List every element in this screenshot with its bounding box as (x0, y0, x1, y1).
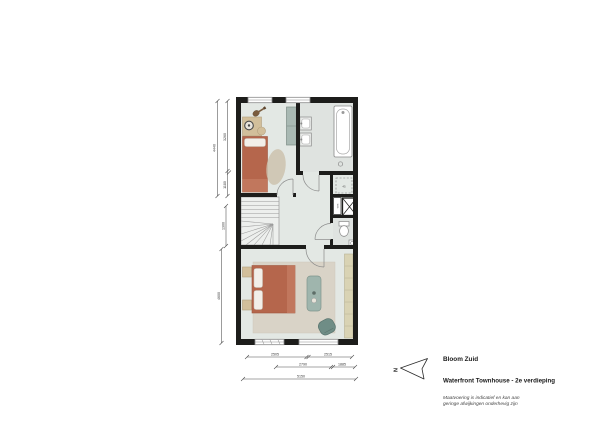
dim-left-seg-top: 3260 (223, 133, 227, 141)
title-block: Bloom Zuid Waterfront Townhouse - 2e ver… (443, 356, 555, 407)
dim-left-seg-bottom: 1180 (223, 181, 227, 189)
north-arrow: N (394, 359, 428, 380)
wardrobe-right (345, 254, 354, 338)
window-top-left (248, 97, 272, 102)
sink-2 (300, 133, 312, 146)
nightstand-1 (243, 267, 252, 277)
single-bed (243, 137, 268, 193)
dim-bottom-row1-right: 2515 (324, 352, 332, 356)
window-top-right (286, 97, 310, 102)
dresser-island (307, 276, 321, 311)
wall-bed2-bath (296, 100, 300, 175)
wardrobe-teal (287, 107, 297, 145)
sink-1 (300, 117, 312, 130)
floor-plan: 45 wm (236, 97, 358, 345)
north-label: N (394, 368, 400, 372)
washing-machine: wm (334, 198, 342, 215)
drawing-title: Waterfront Townhouse - 2e verdieping (443, 378, 555, 385)
dim-bottom-total: 5150 (297, 374, 305, 378)
dim-bottom-row1-left: 2505 (271, 352, 279, 356)
north-arrow-shape (401, 359, 428, 380)
chair (258, 127, 266, 135)
pillow (254, 269, 263, 288)
floor-plan-sheet: 45 wm (0, 0, 600, 423)
nightstand-2 (243, 300, 252, 310)
pillow (245, 139, 266, 147)
dim-left-landing: 1300 (221, 222, 225, 230)
shaft-label: 45 (342, 185, 346, 189)
toilet-bowl (340, 226, 349, 237)
washing-machine-label: wm (336, 203, 340, 208)
bathtub (334, 106, 352, 157)
disclaimer-line1: Maatvoering is indicatief en kan aan (443, 395, 520, 401)
double-bed (252, 266, 295, 314)
pillow (254, 291, 263, 310)
window-bottom-left (255, 339, 284, 344)
project-title: Bloom Zuid (443, 356, 478, 363)
dim-bottom-row2-right: 1885 (338, 362, 346, 366)
staircase (241, 197, 279, 245)
dim-left-total: 4440 (213, 144, 217, 152)
window-bottom-right (299, 339, 338, 344)
dim-left-bedroom: 4600 (217, 292, 221, 300)
dim-bottom-row2-left: 2790 (299, 362, 307, 366)
disclaimer-line2: geringe afwijkingen onderhevig zijn (443, 401, 518, 407)
desk-chair-center (248, 124, 250, 126)
